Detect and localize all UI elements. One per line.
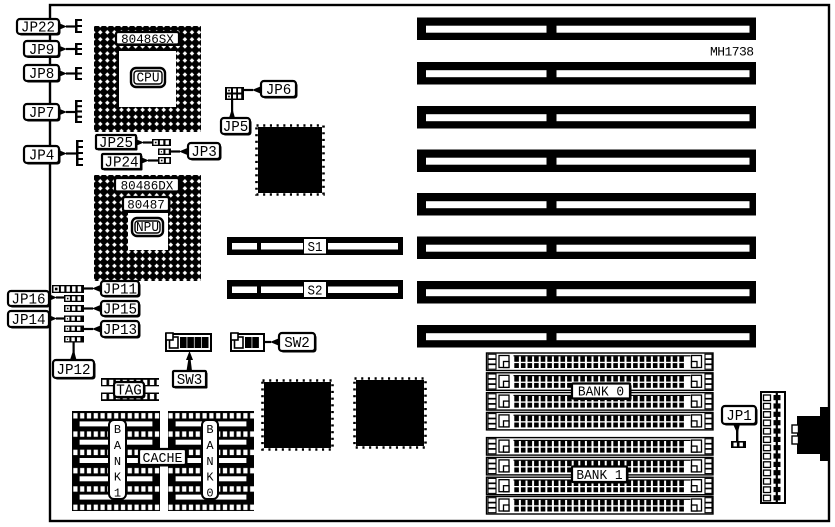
svg-text:B: B — [206, 423, 213, 437]
svg-text:MH1738: MH1738 — [710, 45, 754, 60]
svg-text:CPU: CPU — [137, 72, 160, 87]
svg-text:BANK 1: BANK 1 — [576, 469, 622, 484]
svg-text:80487: 80487 — [127, 198, 165, 213]
svg-text:JP25: JP25 — [99, 135, 133, 152]
svg-text:SW2: SW2 — [284, 335, 310, 352]
svg-text:JP15: JP15 — [103, 302, 137, 319]
svg-text:JP7: JP7 — [29, 105, 55, 122]
svg-text:JP13: JP13 — [103, 322, 137, 339]
svg-text:JP5: JP5 — [223, 119, 249, 136]
svg-text:1: 1 — [114, 487, 121, 501]
svg-text:80486DX: 80486DX — [121, 178, 174, 193]
svg-text:0: 0 — [206, 487, 213, 501]
svg-text:JP22: JP22 — [21, 20, 55, 37]
svg-text:N: N — [114, 455, 121, 469]
svg-text:JP8: JP8 — [29, 66, 55, 83]
svg-text:BANK 0: BANK 0 — [578, 386, 624, 401]
svg-text:JP14: JP14 — [11, 312, 45, 329]
svg-text:JP4: JP4 — [29, 148, 55, 165]
svg-text:JP3: JP3 — [191, 144, 217, 161]
svg-text:N: N — [206, 455, 213, 469]
svg-text:B: B — [114, 423, 121, 437]
svg-text:JP24: JP24 — [104, 155, 138, 172]
svg-text:K: K — [114, 471, 122, 485]
svg-text:K: K — [206, 471, 214, 485]
svg-text:JP16: JP16 — [11, 292, 45, 309]
svg-text:A: A — [206, 439, 214, 453]
svg-text:JP12: JP12 — [56, 362, 90, 379]
svg-text:SW3: SW3 — [177, 372, 203, 389]
svg-text:S2: S2 — [308, 285, 323, 300]
svg-text:JP9: JP9 — [29, 42, 55, 59]
svg-text:JP6: JP6 — [266, 82, 292, 99]
svg-text:CACHE: CACHE — [143, 451, 183, 467]
svg-text:S1: S1 — [308, 241, 323, 256]
svg-text:A: A — [114, 439, 122, 453]
svg-text:JP11: JP11 — [103, 282, 137, 299]
svg-text:JP1: JP1 — [726, 408, 752, 425]
svg-text:TAG: TAG — [116, 383, 142, 400]
svg-text:NPU: NPU — [136, 221, 159, 236]
svg-text:80486SX: 80486SX — [121, 32, 174, 47]
